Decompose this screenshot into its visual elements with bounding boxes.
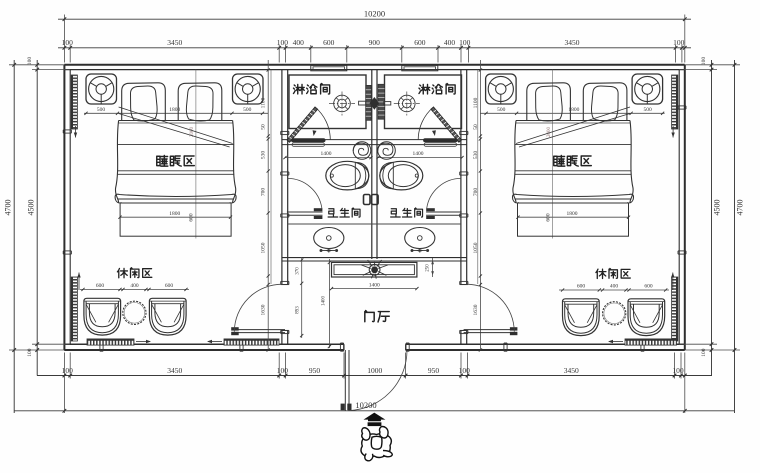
svg-text:500: 500	[97, 107, 106, 113]
svg-text:1400: 1400	[322, 296, 327, 307]
svg-text:4700: 4700	[736, 200, 745, 216]
svg-text:950: 950	[309, 366, 321, 375]
svg-text:1630: 1630	[261, 304, 267, 315]
svg-text:500: 500	[497, 107, 506, 113]
svg-text:900: 900	[369, 38, 381, 47]
svg-text:400: 400	[610, 284, 619, 290]
svg-text:3450: 3450	[565, 38, 580, 47]
svg-text:50: 50	[473, 124, 479, 130]
svg-text:600: 600	[189, 213, 195, 222]
svg-text:3450: 3450	[167, 38, 182, 47]
svg-text:700: 700	[473, 188, 479, 197]
svg-text:400: 400	[444, 38, 456, 47]
svg-text:1800: 1800	[567, 211, 578, 217]
svg-text:1050: 1050	[473, 242, 479, 253]
svg-text:600: 600	[96, 283, 105, 289]
svg-text:4500: 4500	[27, 200, 36, 216]
svg-text:4700: 4700	[4, 200, 13, 216]
svg-text:1050: 1050	[261, 242, 267, 253]
svg-text:530: 530	[261, 151, 267, 160]
svg-text:4500: 4500	[713, 200, 722, 216]
svg-text:1630: 1630	[473, 304, 479, 315]
svg-text:600: 600	[165, 283, 174, 289]
svg-text:100: 100	[27, 57, 33, 66]
svg-text:400: 400	[293, 38, 305, 47]
svg-text:3450: 3450	[564, 366, 579, 375]
svg-text:50: 50	[261, 124, 267, 130]
svg-text:100: 100	[277, 38, 289, 47]
svg-text:100: 100	[62, 38, 74, 47]
svg-text:250: 250	[426, 264, 431, 272]
svg-text:3450: 3450	[167, 366, 182, 375]
svg-text:10200: 10200	[355, 400, 376, 410]
svg-text:10200: 10200	[364, 8, 385, 18]
svg-text:100: 100	[673, 38, 685, 47]
svg-text:370: 370	[296, 267, 301, 275]
svg-text:100: 100	[62, 366, 74, 375]
svg-text:600: 600	[577, 284, 586, 290]
svg-text:1100: 1100	[473, 97, 479, 108]
svg-text:1800: 1800	[169, 107, 180, 113]
svg-text:1400: 1400	[413, 151, 424, 157]
svg-text:1800: 1800	[169, 211, 180, 217]
svg-text:1400: 1400	[321, 151, 332, 157]
svg-text:500: 500	[643, 107, 652, 113]
svg-text:100: 100	[277, 366, 289, 375]
svg-text:530: 530	[473, 151, 479, 160]
svg-text:950: 950	[428, 366, 440, 375]
svg-text:100: 100	[459, 366, 471, 375]
svg-text:100: 100	[459, 38, 471, 47]
svg-text:893: 893	[296, 306, 301, 314]
svg-text:500: 500	[243, 107, 252, 113]
svg-text:100: 100	[701, 348, 707, 357]
svg-text:600: 600	[414, 38, 426, 47]
svg-text:2000: 2000	[547, 127, 552, 138]
svg-text:1000: 1000	[367, 366, 382, 375]
svg-text:100: 100	[701, 57, 707, 66]
svg-text:100: 100	[672, 366, 684, 375]
svg-text:100: 100	[27, 348, 33, 357]
svg-text:400: 400	[130, 283, 139, 289]
svg-text:600: 600	[323, 38, 335, 47]
svg-text:600: 600	[546, 213, 552, 222]
svg-text:700: 700	[261, 188, 267, 197]
svg-text:600: 600	[644, 284, 653, 290]
svg-text:1400: 1400	[369, 282, 380, 288]
